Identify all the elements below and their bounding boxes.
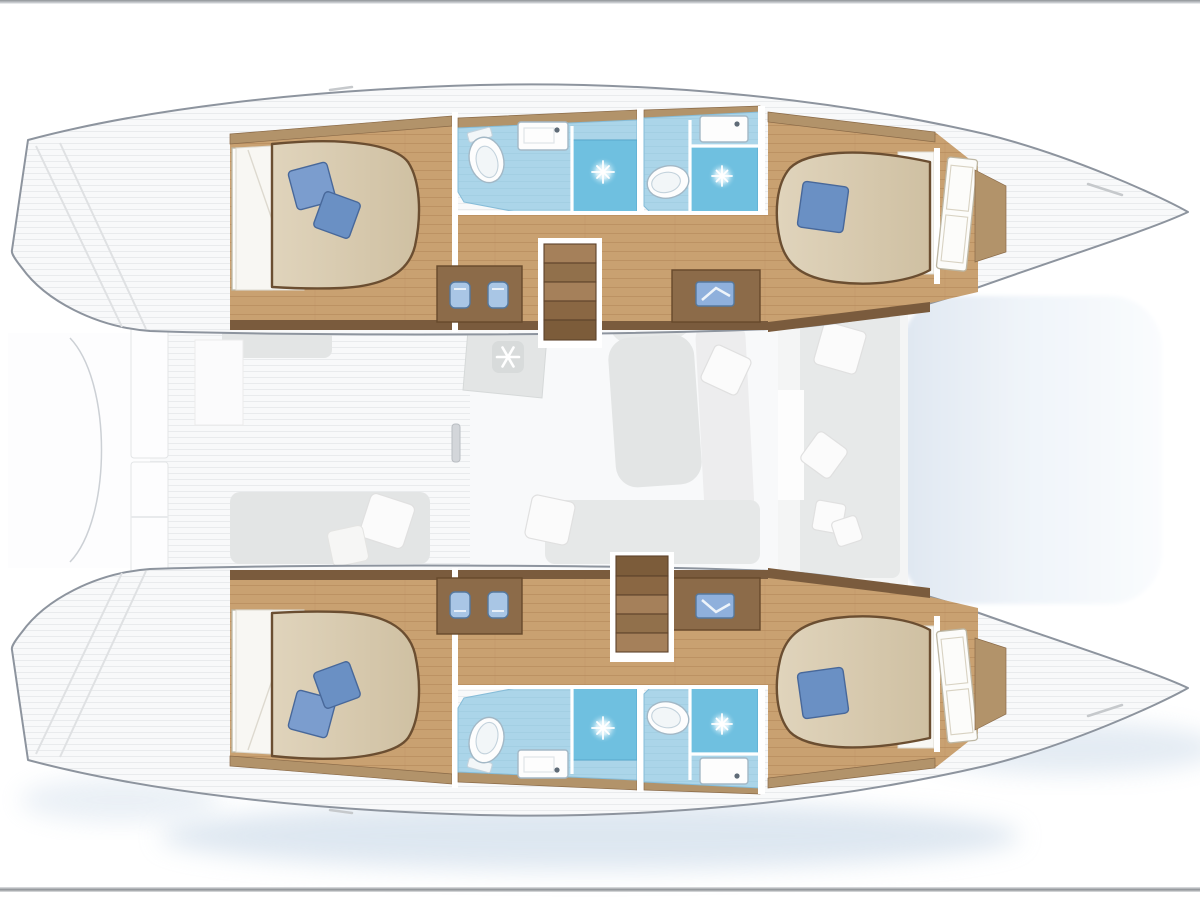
double-bed (777, 616, 930, 747)
forward-cockpit (778, 300, 908, 586)
washbasin (518, 122, 568, 150)
stool (450, 282, 470, 308)
trampoline (902, 296, 1162, 604)
catamaran-plan-svg (0, 0, 1200, 900)
page-divider-top (0, 0, 1200, 4)
pillow (797, 181, 849, 233)
bow-locker (975, 638, 1006, 730)
double-bed (236, 141, 419, 290)
washbasin (700, 758, 748, 784)
shower-sparkle-icon (588, 713, 618, 743)
vanity-starboard-aft (437, 578, 522, 634)
stool (488, 282, 508, 308)
salon-settee (607, 333, 703, 489)
storage-locker (195, 340, 243, 425)
double-bed (777, 153, 930, 284)
shower-sparkle-icon (708, 710, 736, 738)
vanity-port-aft (437, 266, 522, 322)
double-bed (236, 610, 419, 759)
page-divider-bottom (0, 887, 1200, 892)
stairs-starboard (610, 552, 674, 662)
desk-starboard-fwd (672, 578, 760, 630)
head-port-fwd (644, 106, 765, 218)
shower-sparkle-icon (708, 162, 736, 190)
head-starboard-aft (458, 684, 644, 792)
cockpit-step (778, 390, 804, 500)
pillow (797, 667, 849, 719)
floor-plan-image (0, 0, 1200, 900)
stool (488, 592, 508, 618)
washbasin (518, 750, 568, 778)
salon-cushion (524, 494, 576, 546)
shower-sparkle-icon (588, 157, 618, 187)
stool (450, 592, 470, 618)
desk-port-fwd (672, 270, 760, 322)
snowflake-icon (492, 341, 524, 373)
washbasin (700, 116, 748, 142)
bow-locker (975, 170, 1006, 262)
mast-fitting (452, 424, 460, 462)
head-starboard-fwd (644, 682, 765, 794)
stairs-port (538, 238, 602, 348)
head-port-aft (458, 108, 644, 216)
cabin-starboard-aft (230, 568, 458, 788)
cabin-port-aft (230, 112, 458, 332)
cleat (330, 87, 352, 90)
